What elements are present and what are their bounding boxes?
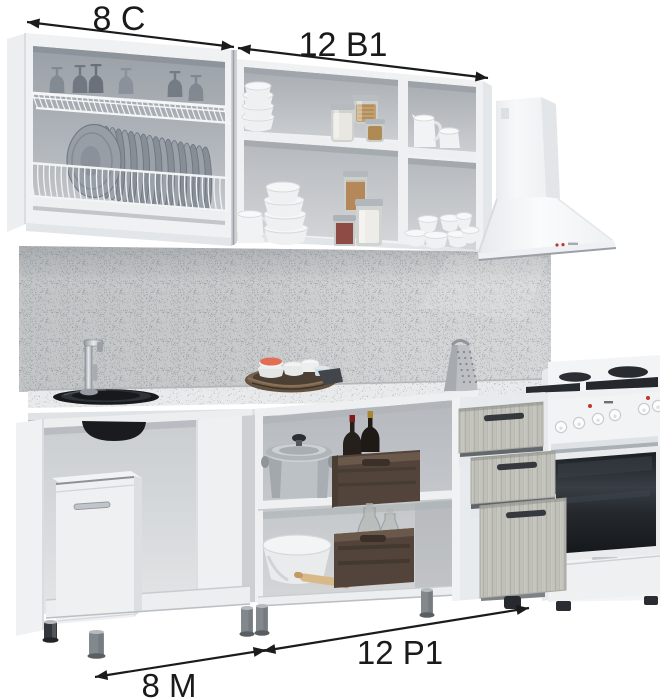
svg-text:8 C: 8 C [93, 0, 146, 38]
svg-text:12 B1: 12 B1 [299, 26, 388, 64]
svg-text:12 P1: 12 P1 [357, 634, 443, 671]
svg-text:8 M: 8 M [141, 667, 196, 700]
